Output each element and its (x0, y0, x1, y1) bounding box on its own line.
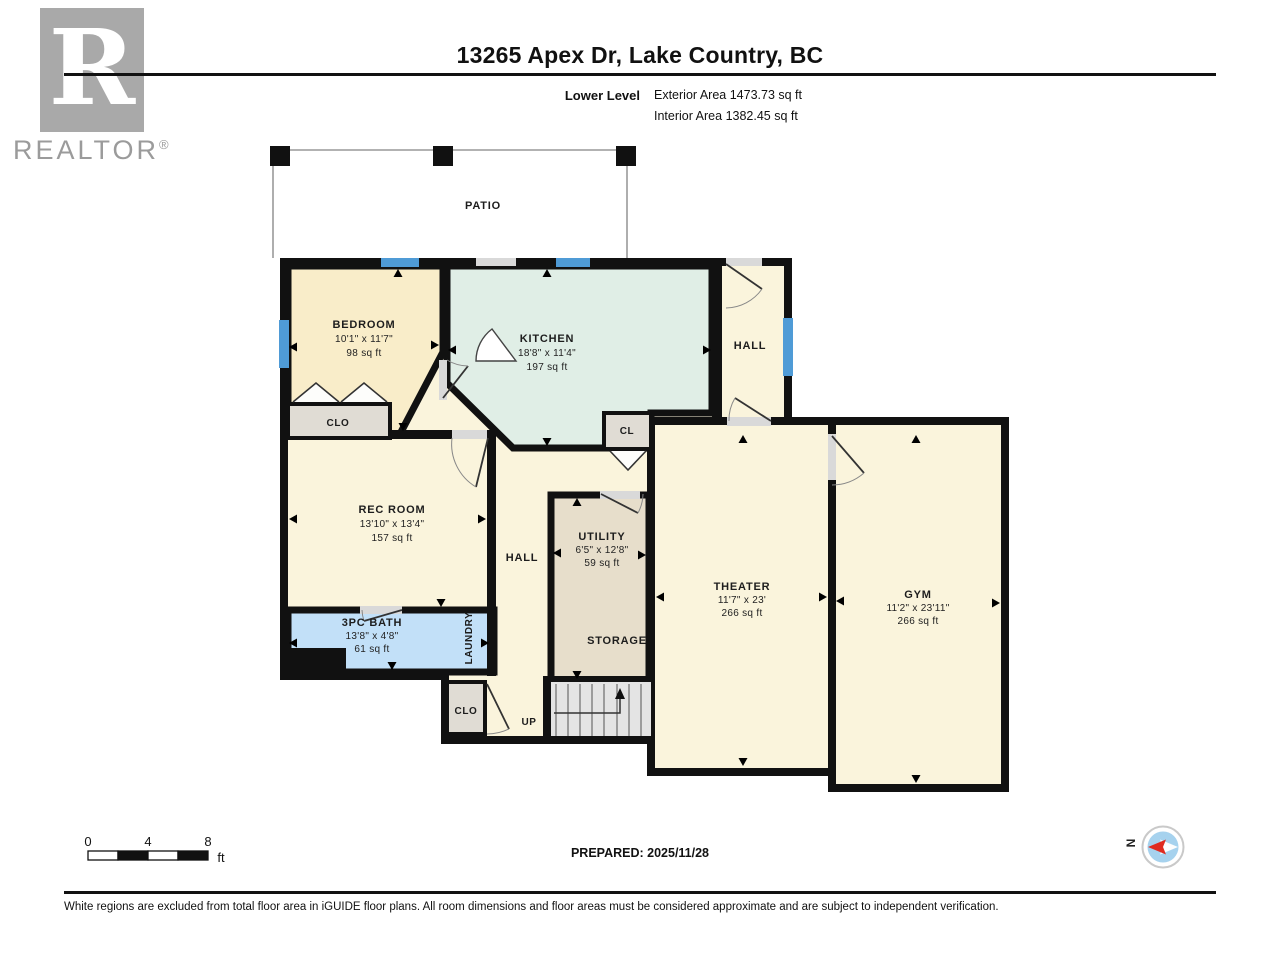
patio-outline (270, 146, 636, 258)
storage-label: STORAGE (587, 635, 647, 647)
kitchen-label: KITCHEN (520, 333, 575, 345)
exterior-area-text: Exterior Area 1473.73 sq ft (654, 88, 802, 102)
bedroom-label: BEDROOM (332, 319, 395, 331)
footer-divider (64, 891, 1216, 894)
disclaimer-text: White regions are excluded from total fl… (64, 901, 1216, 913)
hall-upper-label: HALL (734, 340, 767, 352)
utility-label: UTILITY (578, 531, 625, 543)
header-divider (64, 73, 1216, 76)
level-label: Lower Level (0, 88, 640, 103)
theater-dims: 11'7" x 23' (718, 595, 766, 606)
utility-dims: 6'5" x 12'8" (576, 545, 629, 556)
prepared-date: PREPARED: 2025/11/28 (0, 846, 1280, 860)
gym-label: GYM (904, 589, 931, 601)
patio-post (270, 146, 290, 166)
up-label: UP (521, 717, 536, 728)
realtor-wordmark: REALTOR® (13, 135, 172, 166)
gym-area: 266 sq ft (897, 616, 938, 627)
kitchen-closet-label: CL (620, 426, 635, 437)
registered-symbol: ® (159, 137, 172, 152)
laundry-label: LAUNDRY (464, 612, 475, 665)
staircase (551, 682, 651, 736)
stairs-closet-label: CLO (455, 706, 478, 717)
bath-area: 61 sq ft (354, 644, 389, 655)
theater-label: THEATER (714, 581, 771, 593)
theater-area: 266 sq ft (721, 608, 762, 619)
rec-room-label: REC ROOM (359, 504, 426, 516)
bath-label: 3PC BATH (342, 617, 403, 629)
interior-area-text: Interior Area 1382.45 sq ft (654, 109, 798, 123)
patio-post (616, 146, 636, 166)
kitchen-dims: 18'8" x 11'4" (518, 348, 576, 359)
rec-room-area: 157 sq ft (371, 533, 412, 544)
utility-storage-room (551, 495, 649, 682)
patio-post (433, 146, 453, 166)
bedroom-dims: 10'1" x 11'7" (335, 334, 393, 345)
realtor-word-text: REALTOR (13, 135, 159, 165)
hall-middle-label: HALL (506, 552, 539, 564)
utility-area: 59 sq ft (584, 558, 619, 569)
rec-room-dims: 13'10" x 13'4" (360, 519, 425, 530)
gym-dims: 11'2" x 23'11" (886, 603, 949, 614)
page-title: 13265 Apex Dr, Lake Country, BC (0, 42, 1280, 69)
patio-label: PATIO (465, 200, 501, 212)
bath-dims: 13'8" x 4'8" (346, 631, 399, 642)
bedroom-closet-label: CLO (327, 418, 350, 429)
floor-plan-page: PATIO BEDROOM 10'1" x 11'7" 98 sq ft KIT… (0, 0, 1280, 960)
floor-plan-canvas: PATIO BEDROOM 10'1" x 11'7" 98 sq ft KIT… (0, 0, 1280, 960)
bedroom-area: 98 sq ft (346, 348, 381, 359)
kitchen-area: 197 sq ft (526, 362, 567, 373)
